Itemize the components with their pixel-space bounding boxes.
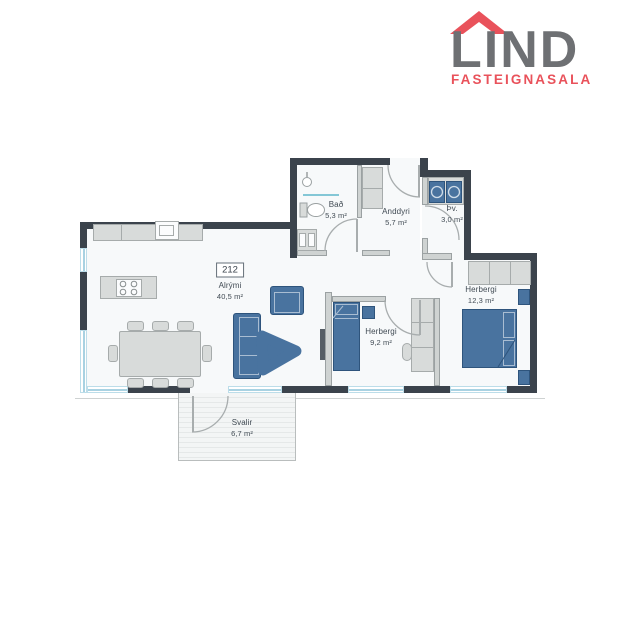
wardrobe-divider bbox=[489, 262, 490, 284]
room-name: Herbergi bbox=[465, 285, 496, 296]
dining-chair bbox=[127, 321, 144, 331]
wall bbox=[290, 158, 297, 258]
wall bbox=[80, 222, 87, 248]
dining-table bbox=[119, 331, 201, 377]
room-label-svalir: Svalir 6,7 m² bbox=[231, 418, 253, 439]
desk-chair bbox=[402, 343, 412, 361]
wall bbox=[290, 158, 390, 165]
cooktop bbox=[116, 279, 142, 297]
room-name: Bað bbox=[325, 200, 347, 211]
wall bbox=[464, 170, 471, 260]
wall bbox=[404, 386, 450, 393]
floor-plan: 212 Alrými 40,5 m² Bað 5,3 m² Anddyri 5,… bbox=[0, 0, 620, 620]
wardrobe-divider bbox=[412, 347, 433, 348]
wardrobe-divider bbox=[510, 262, 511, 284]
room-label-anddyri: Anddyri 5,7 m² bbox=[382, 207, 410, 228]
room-area: 3,0 m² bbox=[441, 215, 463, 225]
room-label-bad: Bað 5,3 m² bbox=[325, 200, 347, 221]
window bbox=[87, 386, 128, 393]
pillow bbox=[335, 304, 358, 315]
window bbox=[228, 386, 282, 393]
entry-door-threshold bbox=[390, 158, 420, 165]
dining-chair bbox=[108, 345, 118, 362]
kitchen-sink-basin bbox=[159, 225, 174, 236]
floor-slab-line bbox=[75, 398, 545, 399]
window bbox=[80, 330, 87, 393]
dining-chair bbox=[202, 345, 212, 362]
washer bbox=[429, 181, 445, 203]
wall bbox=[422, 170, 470, 177]
room-label-herbergi-2: Herbergi 12,3 m² bbox=[465, 285, 496, 306]
room-area: 5,7 m² bbox=[382, 218, 410, 228]
room-area: 6,7 m² bbox=[231, 429, 253, 439]
wall bbox=[530, 253, 537, 393]
room-area: 12,3 m² bbox=[465, 296, 496, 306]
wall bbox=[282, 386, 348, 393]
wardrobe bbox=[411, 298, 434, 372]
dryer bbox=[446, 181, 462, 203]
room-area: 5,3 m² bbox=[325, 211, 347, 221]
nightstand bbox=[518, 370, 530, 385]
wall bbox=[80, 272, 87, 330]
dining-chair bbox=[127, 378, 144, 388]
nightstand bbox=[518, 289, 530, 305]
armchair-seat bbox=[274, 292, 300, 313]
balcony-door-threshold bbox=[190, 386, 228, 393]
tv bbox=[320, 329, 325, 360]
wall bbox=[507, 386, 537, 393]
room-area: 9,2 m² bbox=[365, 338, 396, 348]
wardrobe bbox=[468, 261, 531, 285]
closet-divider bbox=[363, 188, 382, 189]
room-area: 40,5 m² bbox=[217, 292, 243, 302]
interior-wall bbox=[325, 292, 332, 386]
room-name: Svalir bbox=[231, 418, 253, 429]
pillow bbox=[503, 312, 515, 338]
dining-chair bbox=[152, 321, 169, 331]
window bbox=[80, 248, 87, 272]
vanity-door bbox=[308, 233, 315, 247]
laundry-door-gap bbox=[422, 205, 428, 238]
window bbox=[348, 386, 404, 393]
counter-divider bbox=[121, 225, 122, 240]
wall bbox=[464, 253, 537, 260]
wardrobe-divider bbox=[412, 322, 433, 323]
room-label-thvottahus: Þv. 3,0 m² bbox=[441, 204, 463, 225]
room-name: Þv. bbox=[441, 204, 463, 215]
sofa-cushion bbox=[239, 336, 259, 356]
floorplan-page: LIND FASTEIGNASALA bbox=[0, 0, 620, 620]
pillow bbox=[503, 340, 515, 366]
room-name: Anddyri bbox=[382, 207, 410, 218]
dining-chair bbox=[177, 378, 194, 388]
blanket-line bbox=[335, 318, 358, 319]
room-name: Alrými bbox=[217, 281, 243, 292]
room-name: Herbergi bbox=[365, 327, 396, 338]
unit-badge: 212 bbox=[216, 263, 244, 278]
dining-chair bbox=[177, 321, 194, 331]
room-label-alrymi: Alrými 40,5 m² bbox=[217, 281, 243, 302]
interior-wall bbox=[422, 253, 452, 260]
interior-wall bbox=[362, 250, 390, 256]
vanity-door bbox=[299, 233, 306, 247]
interior-wall bbox=[434, 298, 440, 386]
nightstand bbox=[362, 306, 375, 319]
dining-chair bbox=[152, 378, 169, 388]
window bbox=[450, 386, 507, 393]
kitchen-counter bbox=[93, 224, 203, 241]
room-label-herbergi-1: Herbergi 9,2 m² bbox=[365, 327, 396, 348]
